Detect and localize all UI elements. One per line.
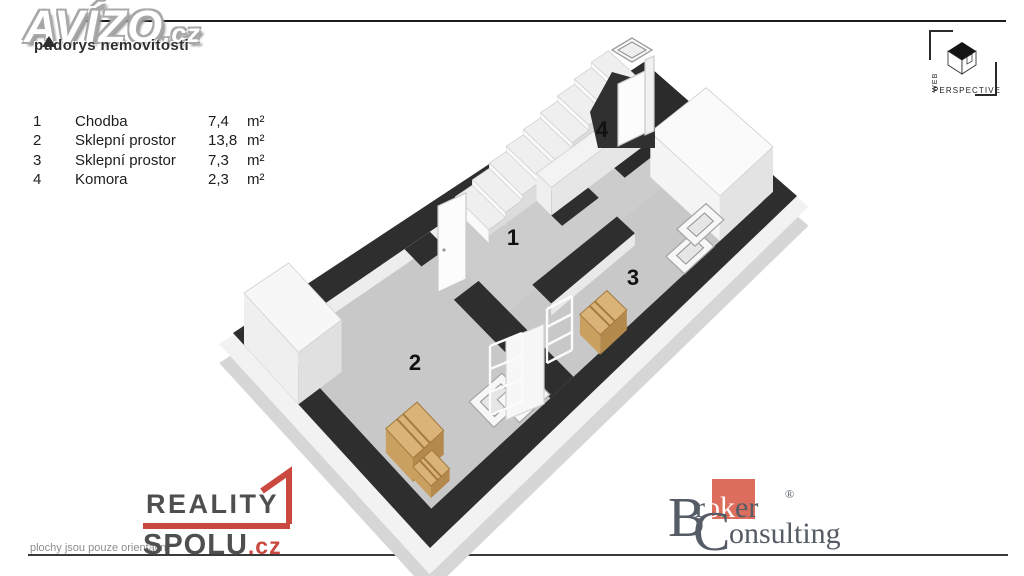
door-post xyxy=(645,56,654,135)
web-perspective-word2: PERSPECTIVE xyxy=(933,86,1001,95)
legend-room-area: 13,8 xyxy=(208,131,247,150)
legend-room-number: 1 xyxy=(33,112,75,131)
legend-room-name: Sklepní prostor xyxy=(75,131,208,150)
room-label: 4 xyxy=(596,117,609,142)
reality-spolu-logo: plochy jsou pouze orientační REALITY SPO… xyxy=(28,462,338,567)
legend-room-unit: m² xyxy=(247,112,265,131)
legend-room-number: 2 xyxy=(33,131,75,150)
legend-row: 3Sklepní prostor7,3m² xyxy=(33,151,265,170)
red-roof-icon xyxy=(258,462,324,530)
room-label: 2 xyxy=(409,350,421,375)
legend-row: 4Komora2,3m² xyxy=(33,170,265,189)
spolu-tld: .cz xyxy=(248,533,282,559)
house-icon xyxy=(946,40,978,76)
legend-room-number: 4 xyxy=(33,170,75,189)
plan-subtitle: půdorys nemovitosti xyxy=(34,37,201,54)
legend-room-name: Sklepní prostor xyxy=(75,151,208,170)
broker-cap-c: C xyxy=(693,504,730,560)
registered-mark: ® xyxy=(785,488,794,500)
legend-room-name: Komora xyxy=(75,170,208,189)
legend-room-number: 3 xyxy=(33,151,75,170)
legend-room-unit: m² xyxy=(247,131,265,150)
door-leaf xyxy=(618,71,645,146)
legend-room-unit: m² xyxy=(247,151,265,170)
legend-room-unit: m² xyxy=(247,170,265,189)
legend-room-area: 2,3 xyxy=(208,170,247,189)
room-label: 3 xyxy=(627,265,639,290)
broker-word-onsulting: onsulting xyxy=(729,519,841,549)
room-label: 1 xyxy=(507,225,519,250)
legend-row: 2Sklepní prostor13,8m² xyxy=(33,131,265,150)
legend-row: 1Chodba7,4m² xyxy=(33,112,265,131)
door-leaf xyxy=(438,193,466,292)
spolu-word: SPOLU.cz xyxy=(143,531,282,560)
avizo-triangle-icon xyxy=(42,36,56,47)
legend-room-area: 7,4 xyxy=(208,112,247,131)
door-handle xyxy=(442,248,445,251)
legend: 1Chodba7,4m²2Sklepní prostor13,8m²3Sklep… xyxy=(33,112,265,190)
web-perspective-logo: WEB PERSPECTIVE xyxy=(926,26,1000,98)
legend-room-name: Chodba xyxy=(75,112,208,131)
legend-room-area: 7,3 xyxy=(208,151,247,170)
